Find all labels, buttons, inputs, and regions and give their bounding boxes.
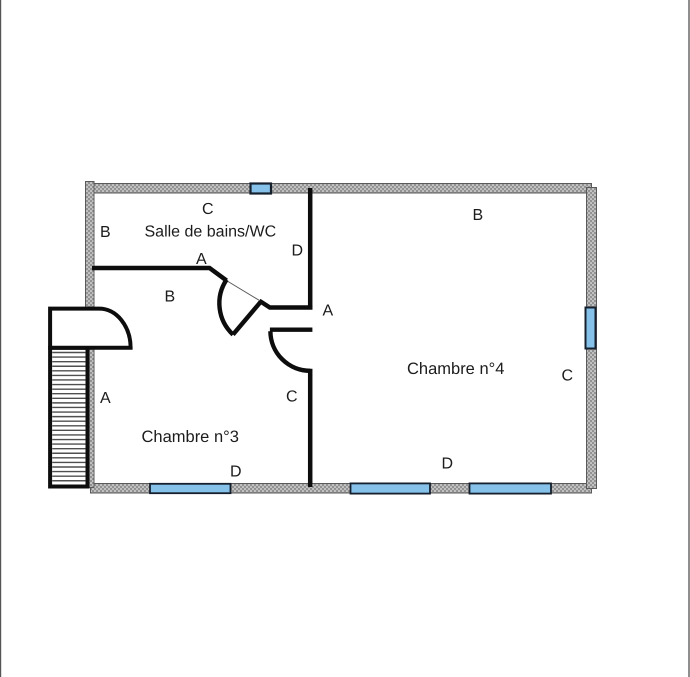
svg-text:A: A [196,251,207,268]
svg-text:B: B [473,207,484,224]
svg-text:B: B [165,289,176,306]
svg-text:Chambre n°4: Chambre n°4 [407,360,504,378]
svg-text:Salle de bains/WC: Salle de bains/WC [145,223,277,240]
svg-text:Chambre n°3: Chambre n°3 [142,428,239,446]
svg-text:D: D [292,243,304,260]
svg-text:A: A [323,303,334,320]
svg-text:D: D [442,455,454,472]
svg-text:C: C [286,389,298,406]
svg-text:C: C [202,201,214,218]
svg-text:A: A [100,390,111,407]
svg-text:C: C [562,368,574,385]
svg-text:D: D [230,463,242,480]
svg-text:B: B [100,224,111,241]
